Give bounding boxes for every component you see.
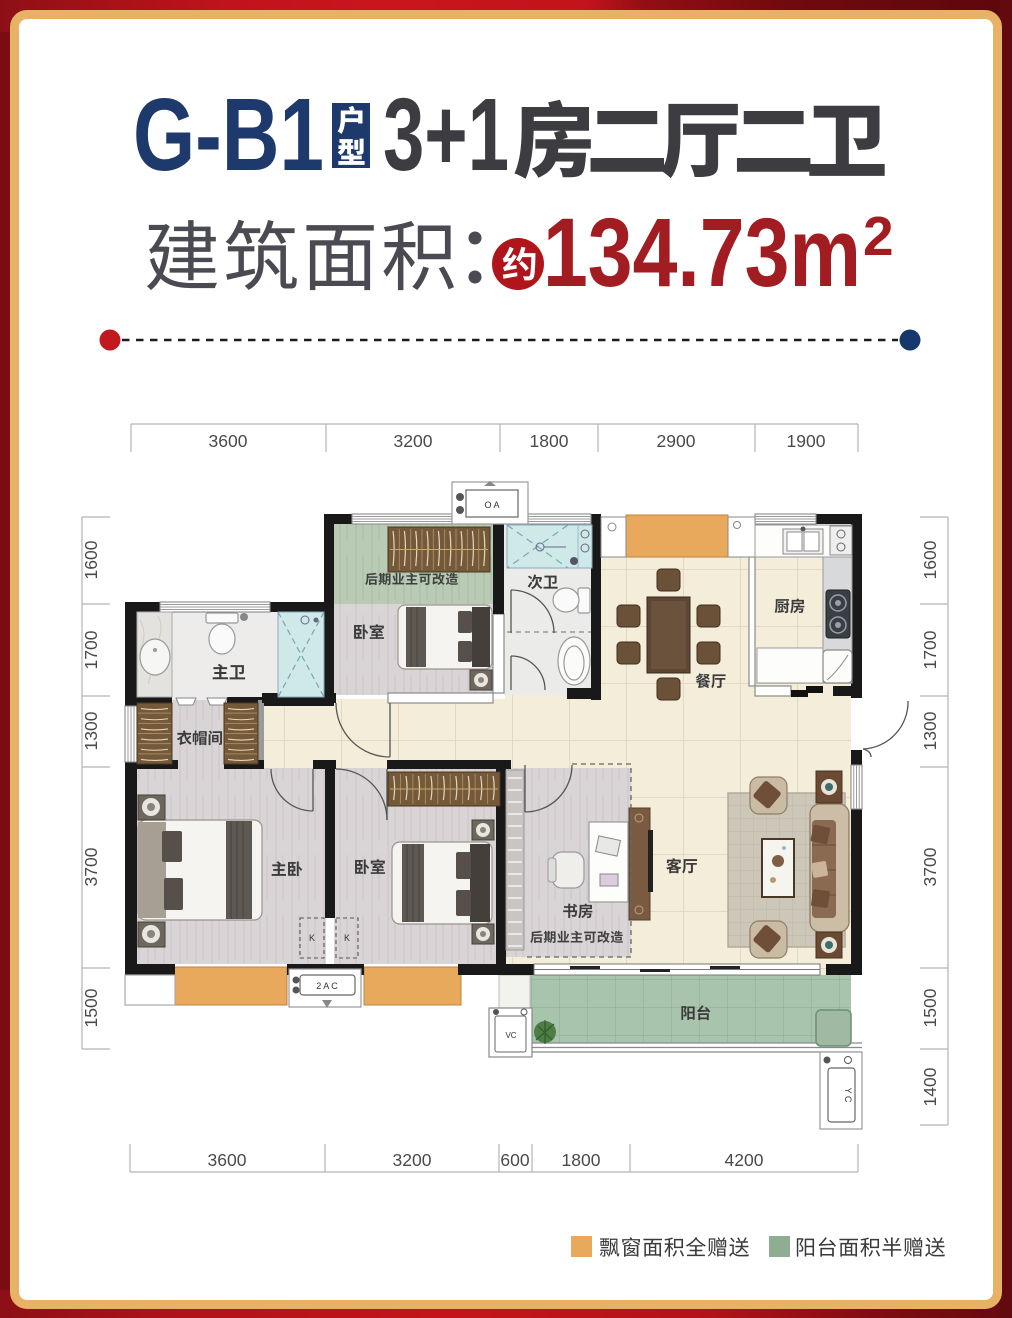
svg-text:1400: 1400	[920, 1067, 940, 1106]
svg-text:3+1: 3+1	[383, 77, 509, 192]
svg-text:3700: 3700	[920, 847, 940, 886]
svg-text:1500: 1500	[81, 988, 101, 1027]
svg-text:1300: 1300	[81, 711, 101, 750]
svg-text:2 A C: 2 A C	[316, 981, 338, 991]
svg-text:1900: 1900	[787, 431, 826, 451]
svg-text:1300: 1300	[920, 711, 940, 750]
svg-text:600: 600	[500, 1150, 529, 1170]
svg-text:O A: O A	[484, 500, 499, 510]
svg-text:K: K	[309, 933, 315, 943]
svg-text:1800: 1800	[562, 1150, 601, 1170]
svg-text:G-B1: G-B1	[133, 77, 324, 192]
svg-text:3200: 3200	[393, 1150, 432, 1170]
svg-text:1500: 1500	[920, 988, 940, 1027]
svg-text:3700: 3700	[81, 847, 101, 886]
svg-text:1600: 1600	[920, 540, 940, 579]
svg-text:134.73m: 134.73m	[543, 198, 861, 307]
svg-text:1700: 1700	[81, 630, 101, 669]
svg-text:1600: 1600	[81, 540, 101, 579]
svg-text:VC: VC	[505, 1031, 516, 1040]
svg-text:3600: 3600	[208, 1150, 247, 1170]
svg-text:3600: 3600	[209, 431, 248, 451]
svg-text:1800: 1800	[530, 431, 569, 451]
svg-text:4200: 4200	[725, 1150, 764, 1170]
svg-text:K: K	[344, 933, 350, 943]
svg-text:2: 2	[863, 205, 894, 267]
svg-text:1700: 1700	[920, 630, 940, 669]
svg-text:2900: 2900	[657, 431, 696, 451]
svg-text:3200: 3200	[394, 431, 433, 451]
svg-text:Y C: Y C	[843, 1088, 853, 1103]
